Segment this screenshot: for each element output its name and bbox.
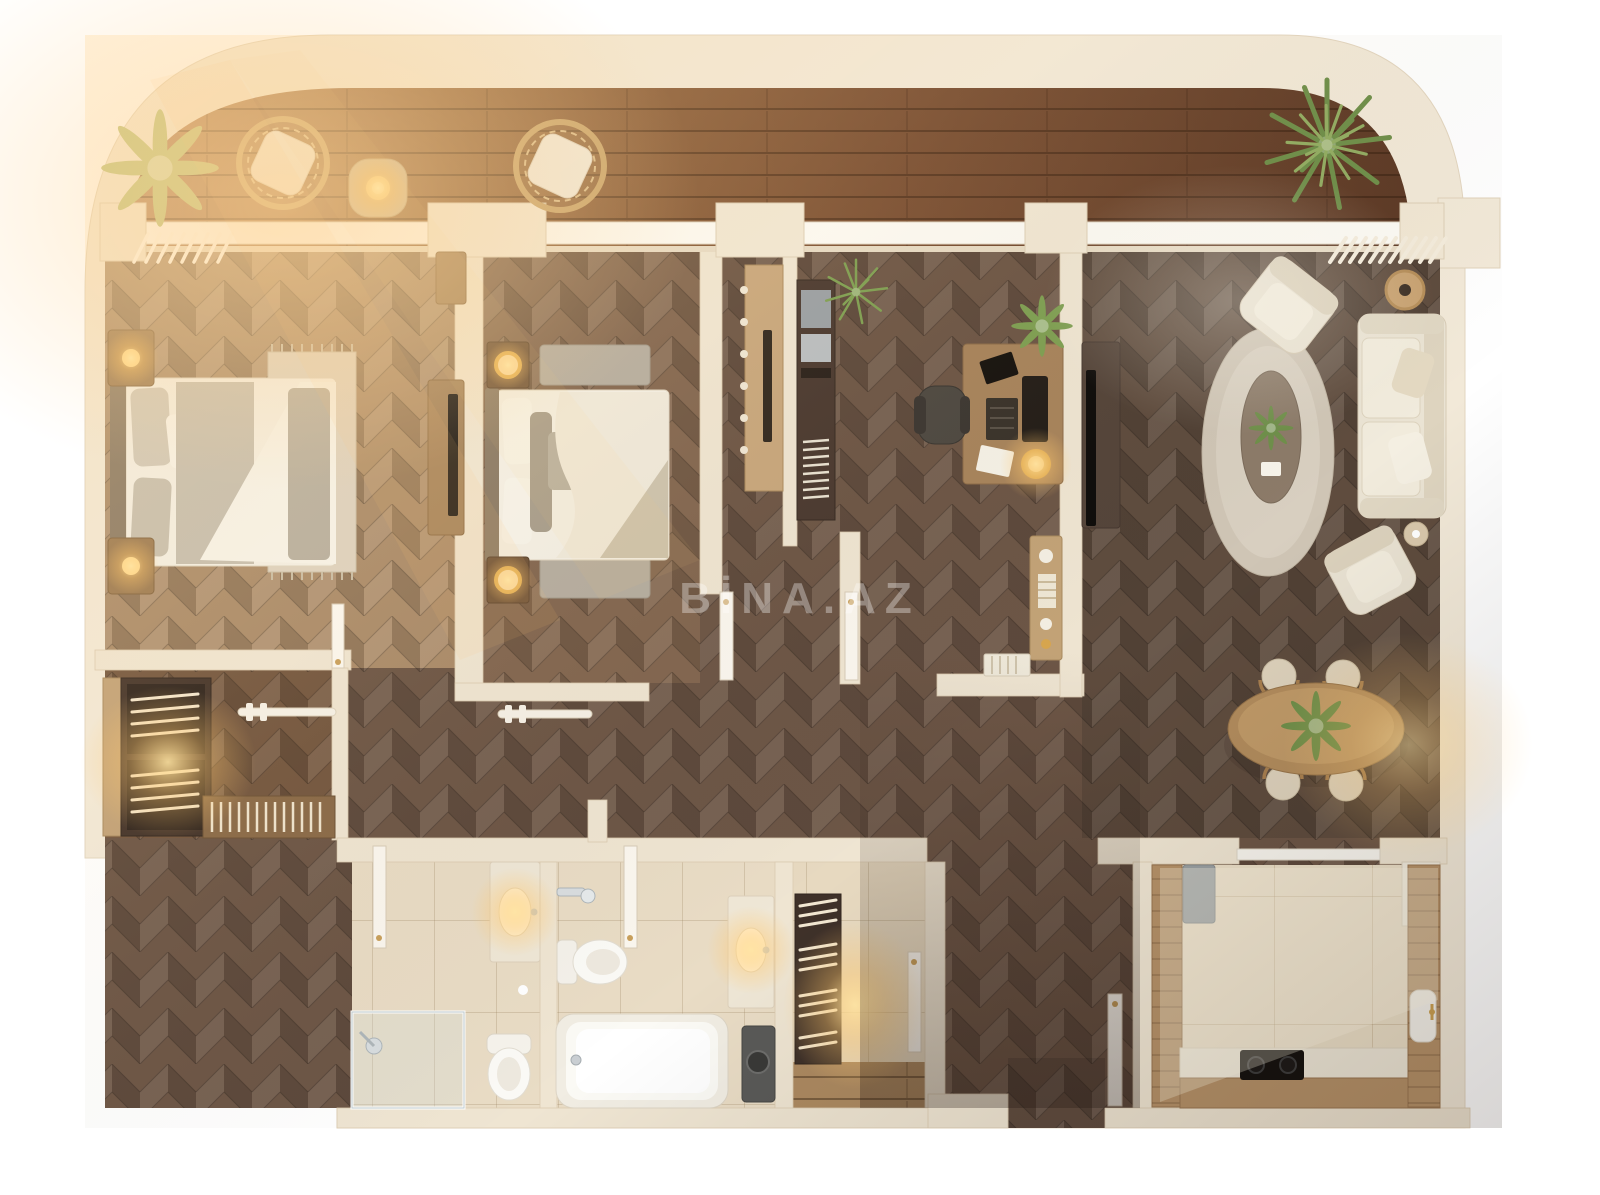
watermark-text: BİNA.AZ [679, 574, 920, 623]
floor-plan-svg: BİNA.AZ [0, 0, 1600, 1195]
floor-plan-image: BİNA.AZ [0, 0, 1600, 1195]
lighting-overlays [0, 0, 1533, 1128]
